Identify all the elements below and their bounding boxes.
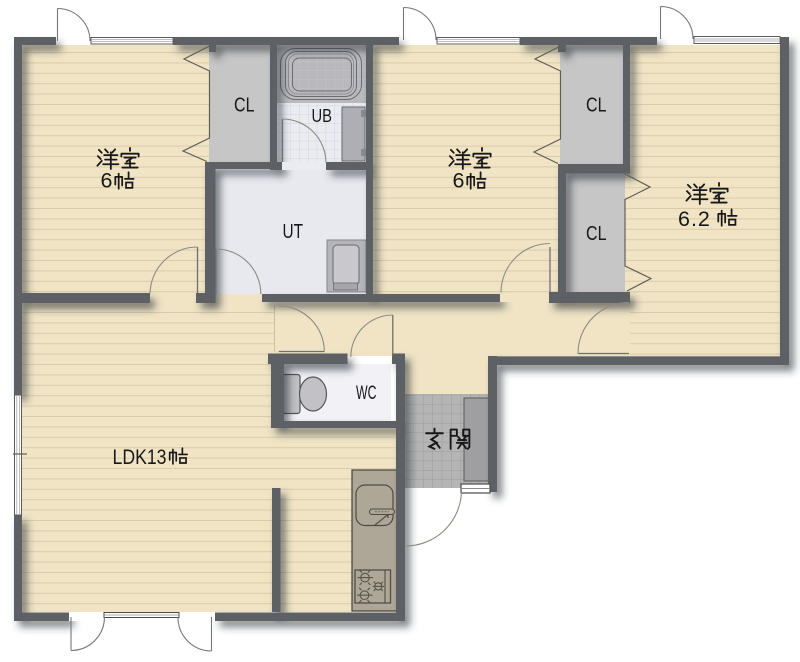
svg-text:6.2: 6.2 xyxy=(678,207,711,231)
svg-text:UT: UT xyxy=(283,221,304,243)
svg-text:UB: UB xyxy=(312,105,333,126)
svg-text:6: 6 xyxy=(453,169,465,193)
svg-text:6: 6 xyxy=(101,169,113,193)
svg-text:CL: CL xyxy=(586,94,607,117)
svg-text:CL: CL xyxy=(586,222,607,245)
svg-text:WC: WC xyxy=(356,382,377,404)
svg-text:LDK13: LDK13 xyxy=(113,446,167,469)
svg-text:CL: CL xyxy=(234,94,255,117)
